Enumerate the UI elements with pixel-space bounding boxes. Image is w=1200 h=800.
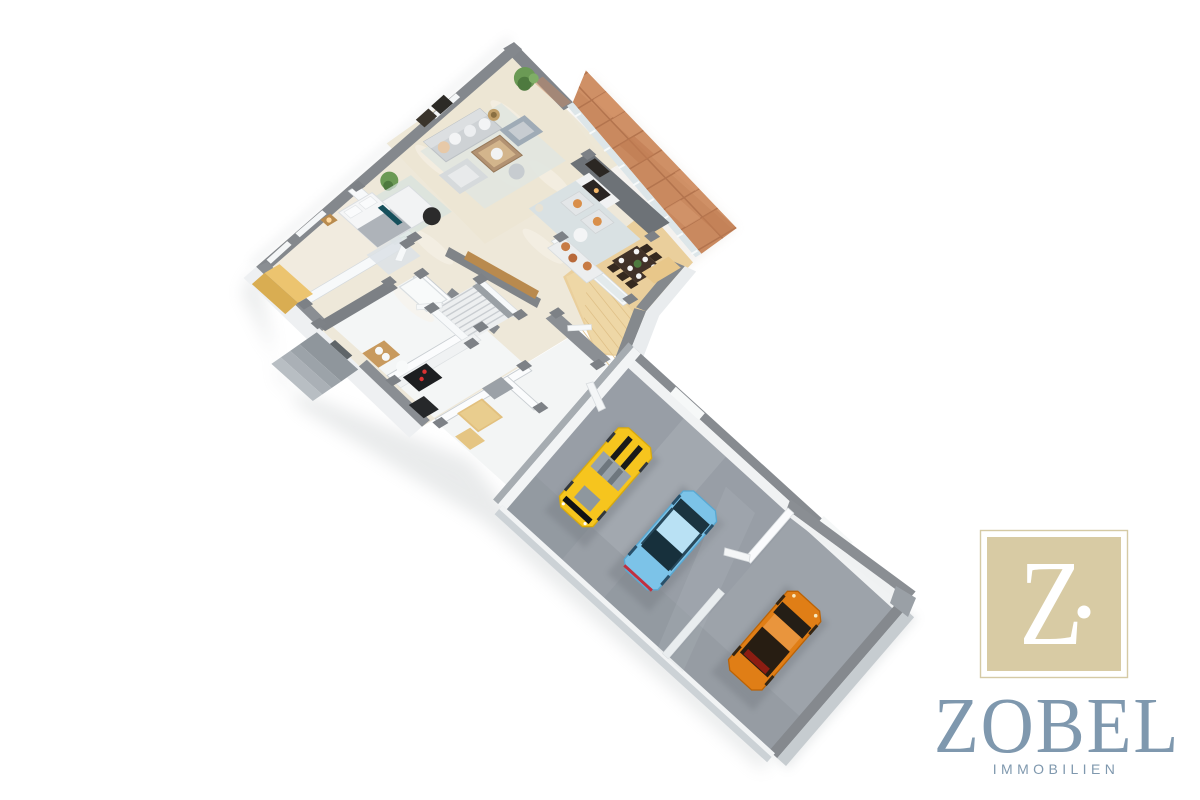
svg-text:ZOBEL: ZOBEL: [934, 681, 1180, 769]
svg-text:Z: Z: [1019, 536, 1083, 671]
svg-text:IMMOBILIEN: IMMOBILIEN: [993, 761, 1119, 777]
